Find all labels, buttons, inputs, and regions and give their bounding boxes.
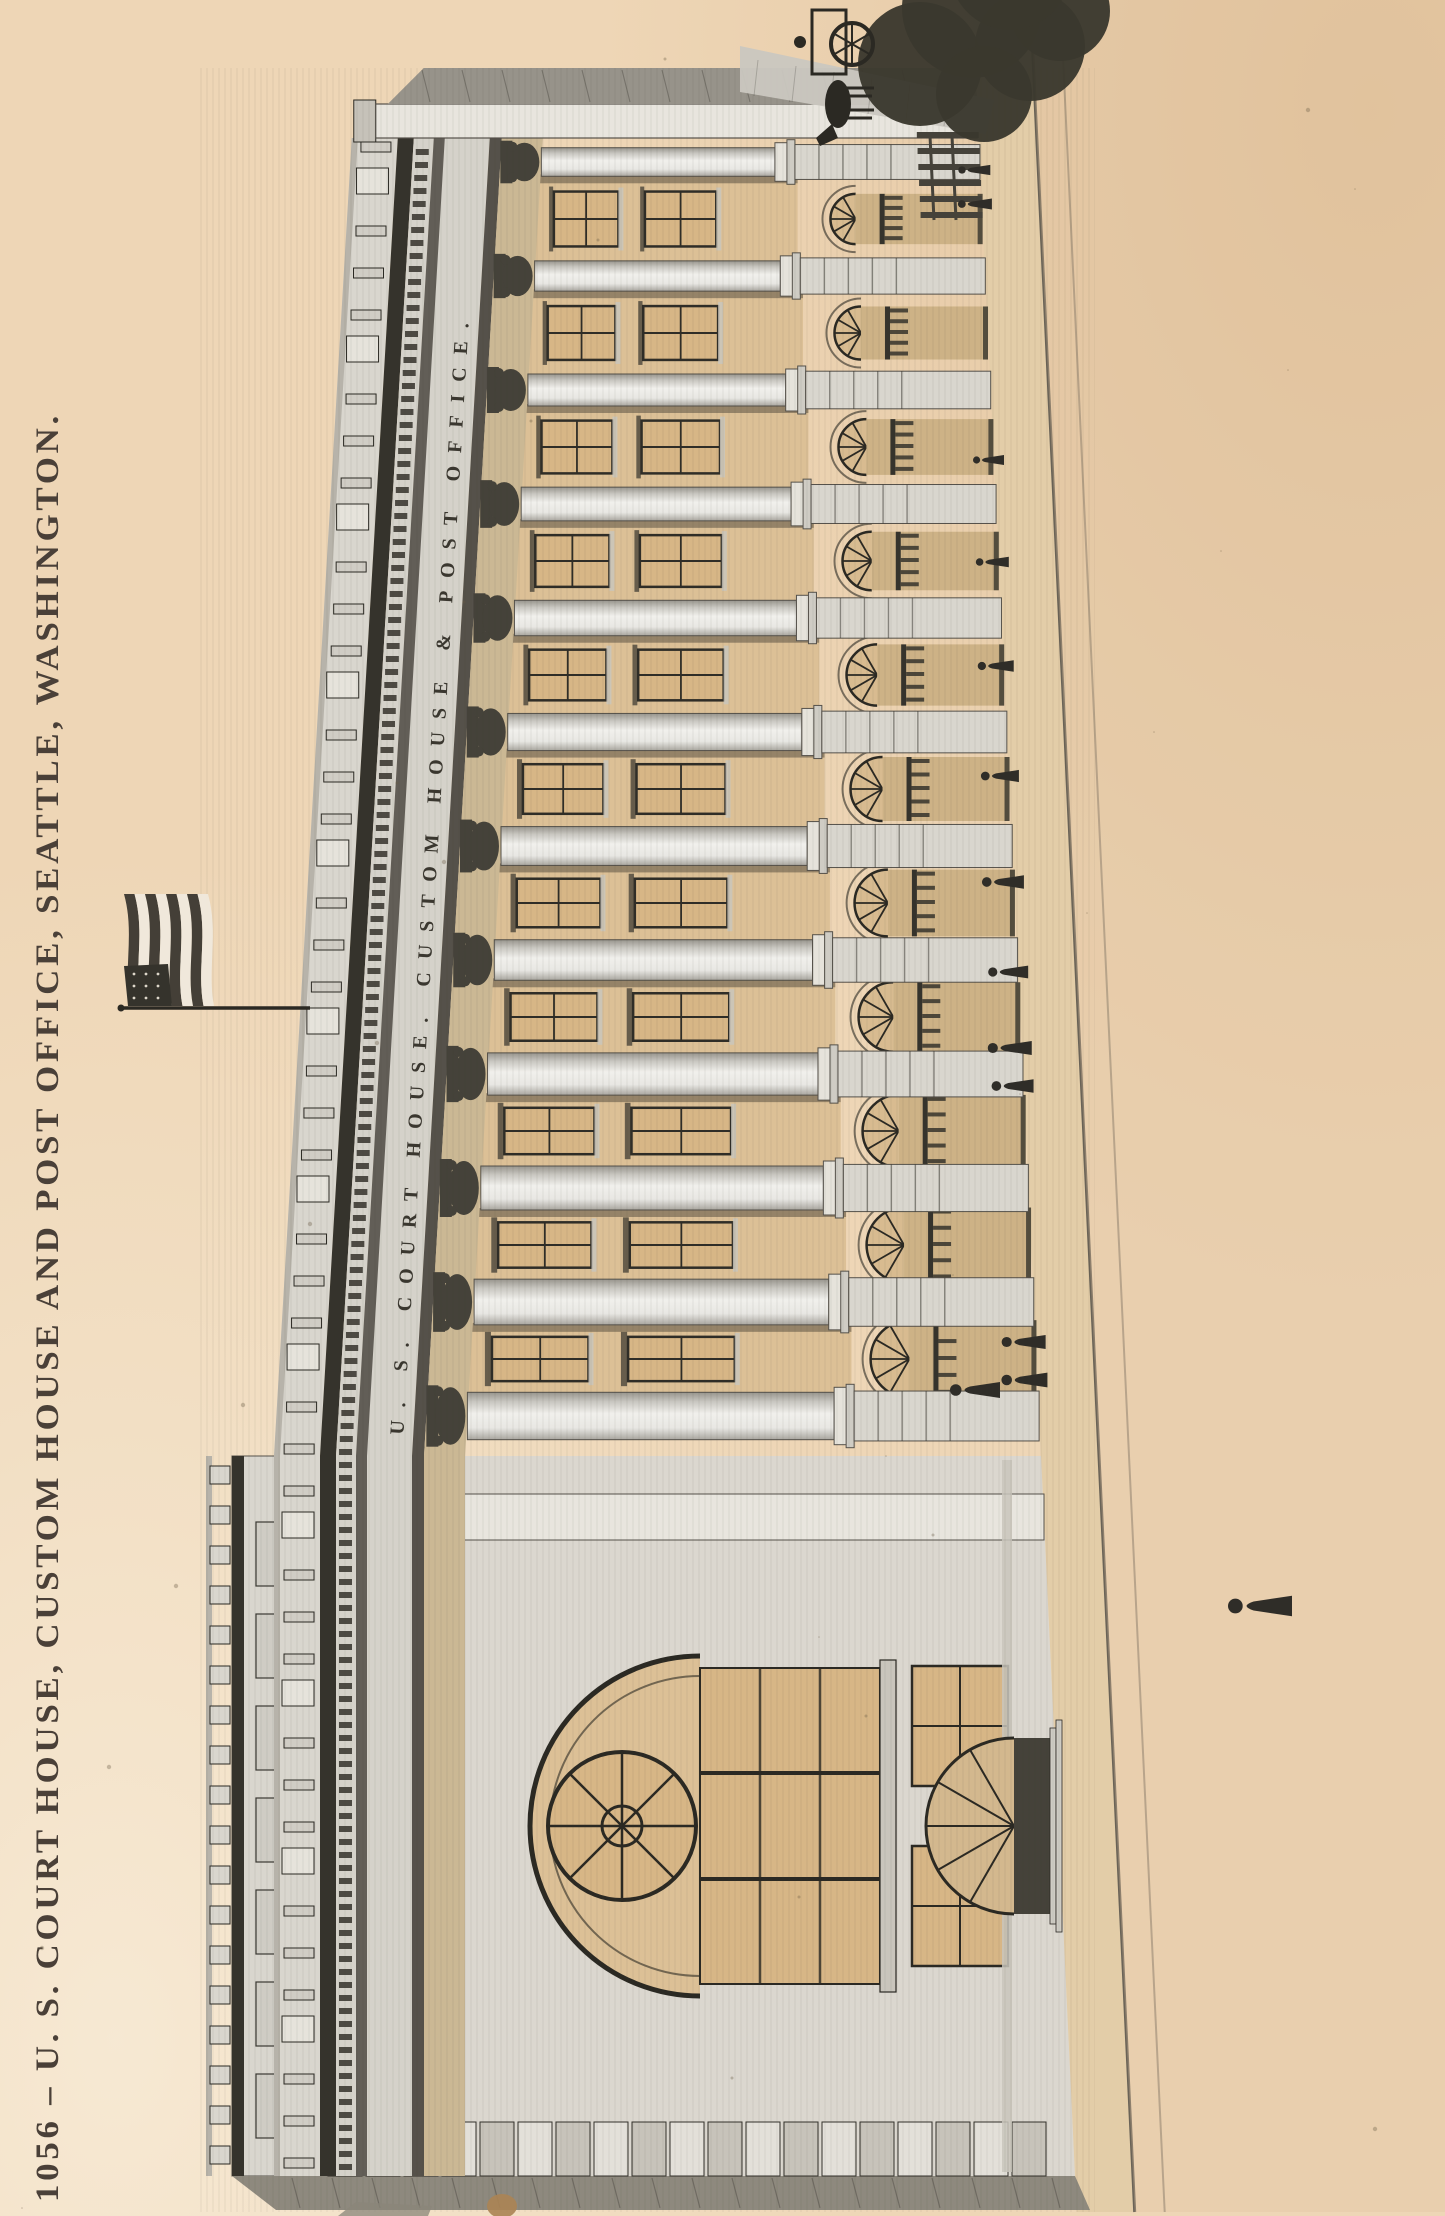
engraving-texture: [200, 68, 1095, 2212]
paper-speck: [885, 1455, 887, 1457]
fence-post: [921, 212, 983, 218]
paper-speck: [932, 1534, 935, 1537]
postcard-scene: 1056 – U. S. COURT HOUSE, CUSTOM HOUSE A…: [0, 0, 1445, 2216]
paper-speck: [241, 1403, 245, 1407]
canton-star: [133, 973, 136, 976]
paper-speck: [1153, 731, 1155, 733]
paper-speck: [952, 1274, 954, 1276]
paper-speck: [1354, 188, 1356, 190]
courthouse-building: [200, 68, 1095, 2212]
paper-speck: [597, 239, 600, 242]
paper-speck: [1306, 108, 1310, 112]
paper-speck: [174, 1584, 178, 1588]
canton-star: [133, 997, 136, 1000]
canton-star: [157, 985, 160, 988]
person-head: [1228, 1599, 1243, 1614]
person-head: [958, 200, 966, 208]
paper-speck: [40, 1946, 44, 1950]
paper-speck: [442, 860, 446, 864]
canton-star: [157, 973, 160, 976]
paper-speck: [664, 58, 667, 61]
canton-star: [145, 997, 148, 1000]
cart-driver: [794, 36, 806, 48]
paper-speck: [731, 2077, 734, 2080]
paper-speck: [375, 1041, 379, 1045]
canton-star: [133, 985, 136, 988]
tree-foliage: [936, 46, 1032, 142]
flagpole-finial: [118, 1005, 125, 1012]
paper-speck: [530, 420, 533, 423]
caption-row: 1056 – U. S. COURT HOUSE, CUSTOM HOUSE A…: [30, 412, 66, 2202]
person-head: [988, 967, 997, 976]
person-head: [1001, 1375, 1012, 1386]
person-head: [978, 662, 986, 670]
postcard-image: 1056 – U. S. COURT HOUSE, CUSTOM HOUSE A…: [0, 0, 1445, 2216]
person-head: [1002, 1337, 1012, 1347]
paper-speck: [1287, 369, 1289, 371]
paper-speck: [818, 1636, 820, 1638]
person-head: [950, 1384, 962, 1396]
paper-speck: [21, 2207, 23, 2209]
flag-canton: [124, 964, 172, 1006]
canton-star: [157, 997, 160, 1000]
person-head: [988, 1043, 998, 1053]
caption-text: 1056 – U. S. COURT HOUSE, CUSTOM HOUSE A…: [30, 412, 66, 2202]
paper-speck: [1019, 1093, 1021, 1095]
canton-star: [145, 985, 148, 988]
fence-post: [920, 196, 982, 202]
paper-speck: [798, 1896, 801, 1899]
paper-speck: [463, 601, 466, 604]
paper-speck: [865, 1715, 868, 1718]
paper-speck: [1086, 912, 1088, 914]
paper-speck: [1220, 550, 1222, 552]
person-head: [958, 166, 965, 173]
person-head: [981, 772, 990, 781]
paper-speck: [1373, 2127, 1377, 2131]
person-head: [992, 1081, 1002, 1091]
fence-post: [919, 180, 981, 186]
person-head: [973, 456, 980, 463]
paper-speck: [308, 1222, 312, 1226]
person-head: [976, 558, 984, 566]
canton-star: [145, 973, 148, 976]
person-head: [982, 877, 992, 887]
fence-post: [918, 148, 980, 154]
paper-speck: [396, 782, 399, 785]
paper-speck: [107, 1765, 111, 1769]
